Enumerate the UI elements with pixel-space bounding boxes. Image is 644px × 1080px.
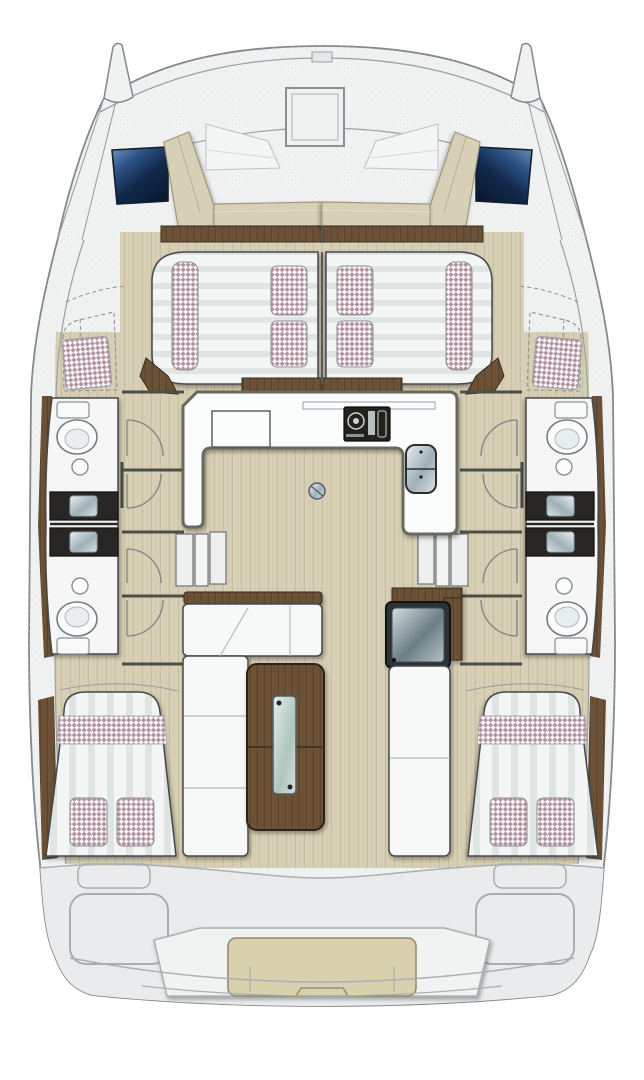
aft-bed-pillow — [70, 798, 107, 846]
aft-bed-pillow — [117, 798, 154, 846]
washbasin-icon — [72, 578, 88, 594]
bench-seat — [389, 666, 450, 856]
settee-arm — [183, 604, 322, 656]
table-glass-strip — [273, 696, 296, 794]
toilet-cistern-icon — [57, 638, 89, 654]
deck-hatch — [286, 88, 344, 146]
toilet-bowl-icon — [65, 429, 89, 449]
vanity-basin-icon — [70, 532, 97, 552]
washbasin-icon — [72, 459, 88, 475]
bow-notch-fitting — [312, 52, 332, 62]
cooler-hinge — [392, 658, 396, 662]
forward-berth-bolster — [172, 262, 198, 370]
port-hull-window — [112, 147, 168, 204]
port-forepeak-cushion — [62, 336, 112, 390]
toilet-bowl-icon — [65, 607, 89, 627]
forward-berth-pillow — [271, 266, 307, 315]
table-mount-icon — [309, 483, 325, 499]
port-bow-tip — [104, 43, 133, 102]
companionway-steps — [176, 532, 226, 586]
vanity-basin-icon — [70, 496, 97, 516]
aft-bed-checker-band — [57, 716, 167, 744]
forward-berth-pillow — [271, 321, 307, 367]
settee-wood-rail — [184, 592, 322, 604]
helm-seat-cushion — [228, 938, 416, 996]
forward-berth-head-trim — [161, 226, 322, 242]
toilet-cistern-icon — [57, 402, 89, 418]
saloon-bench — [386, 588, 462, 856]
galley-sink-icon — [406, 445, 436, 493]
settee-column — [183, 656, 248, 856]
saloon-table — [247, 664, 324, 830]
catamaran-floorplan — [0, 0, 644, 1080]
cooler-box-lid — [392, 608, 444, 662]
stove-icon — [344, 407, 390, 441]
floorplan-canvas — [0, 0, 644, 1080]
port-cockpit-seat — [214, 202, 322, 226]
